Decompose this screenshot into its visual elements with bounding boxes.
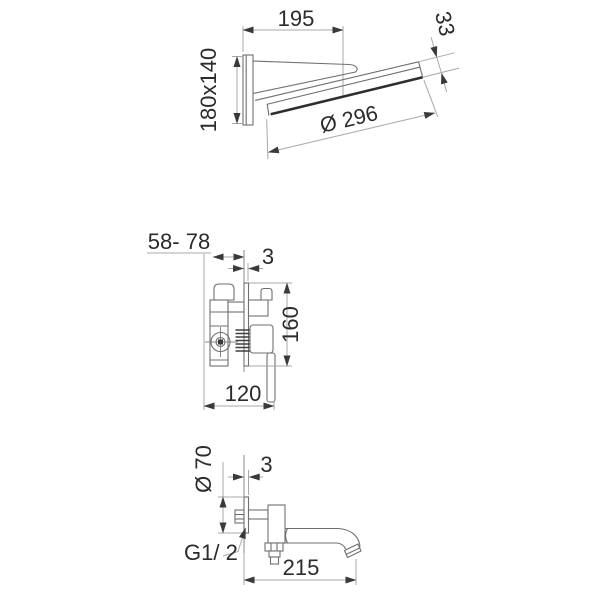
dim-3-spout: 3 <box>228 452 273 495</box>
dim-label-thread: G1/ 2 <box>184 540 238 565</box>
spout-view: Ø 70 3 <box>184 445 361 585</box>
dim-215: 215 <box>244 553 356 585</box>
technical-drawing: 195 180x140 <box>0 0 600 600</box>
thread-callout: G1/ 2 <box>184 528 246 565</box>
dim-label-head-thickness: 33 <box>430 9 460 39</box>
handle-hub <box>250 325 273 353</box>
dim-label-mixer-plate-offset: 3 <box>262 244 274 269</box>
dim-label-projection: 195 <box>278 6 315 31</box>
dim-58-78: 58- 78 <box>147 229 244 257</box>
dim-120: 120 <box>204 381 274 410</box>
dim-label-spout-plate-offset: 3 <box>260 452 272 477</box>
dim-label-flange-diameter: Ø 70 <box>191 445 216 493</box>
dim-label-trim-height: 160 <box>278 306 303 343</box>
dim-180x140: 180x140 <box>196 48 243 132</box>
diverter-knob <box>261 289 272 301</box>
dim-296: Ø 296 <box>258 79 438 159</box>
shower-head-disc: Ø 296 33 <box>244 9 478 159</box>
mixer-body <box>205 284 244 366</box>
mixer-thread-stem <box>236 330 251 351</box>
dim-label-install-depth: 58- 78 <box>148 229 210 254</box>
showerhead-view: 195 180x140 <box>196 6 478 159</box>
dim-label-spout-projection: 215 <box>283 555 320 580</box>
dim-195: 195 <box>243 6 343 96</box>
dim-3-mixer: 3 <box>228 244 274 281</box>
dim-label-head-diameter: Ø 296 <box>318 101 381 138</box>
dim-33: 33 <box>409 9 473 97</box>
shower-wall-plate <box>243 55 253 125</box>
mixer-view: 58- 78 3 <box>147 229 303 410</box>
handle-lever <box>267 353 275 402</box>
spout-underbody-fittings <box>265 543 283 564</box>
drawing-sheet: 195 180x140 <box>0 0 600 600</box>
dim-label-wall-plate: 180x140 <box>196 48 221 132</box>
dim-label-trim-width: 120 <box>225 381 262 406</box>
